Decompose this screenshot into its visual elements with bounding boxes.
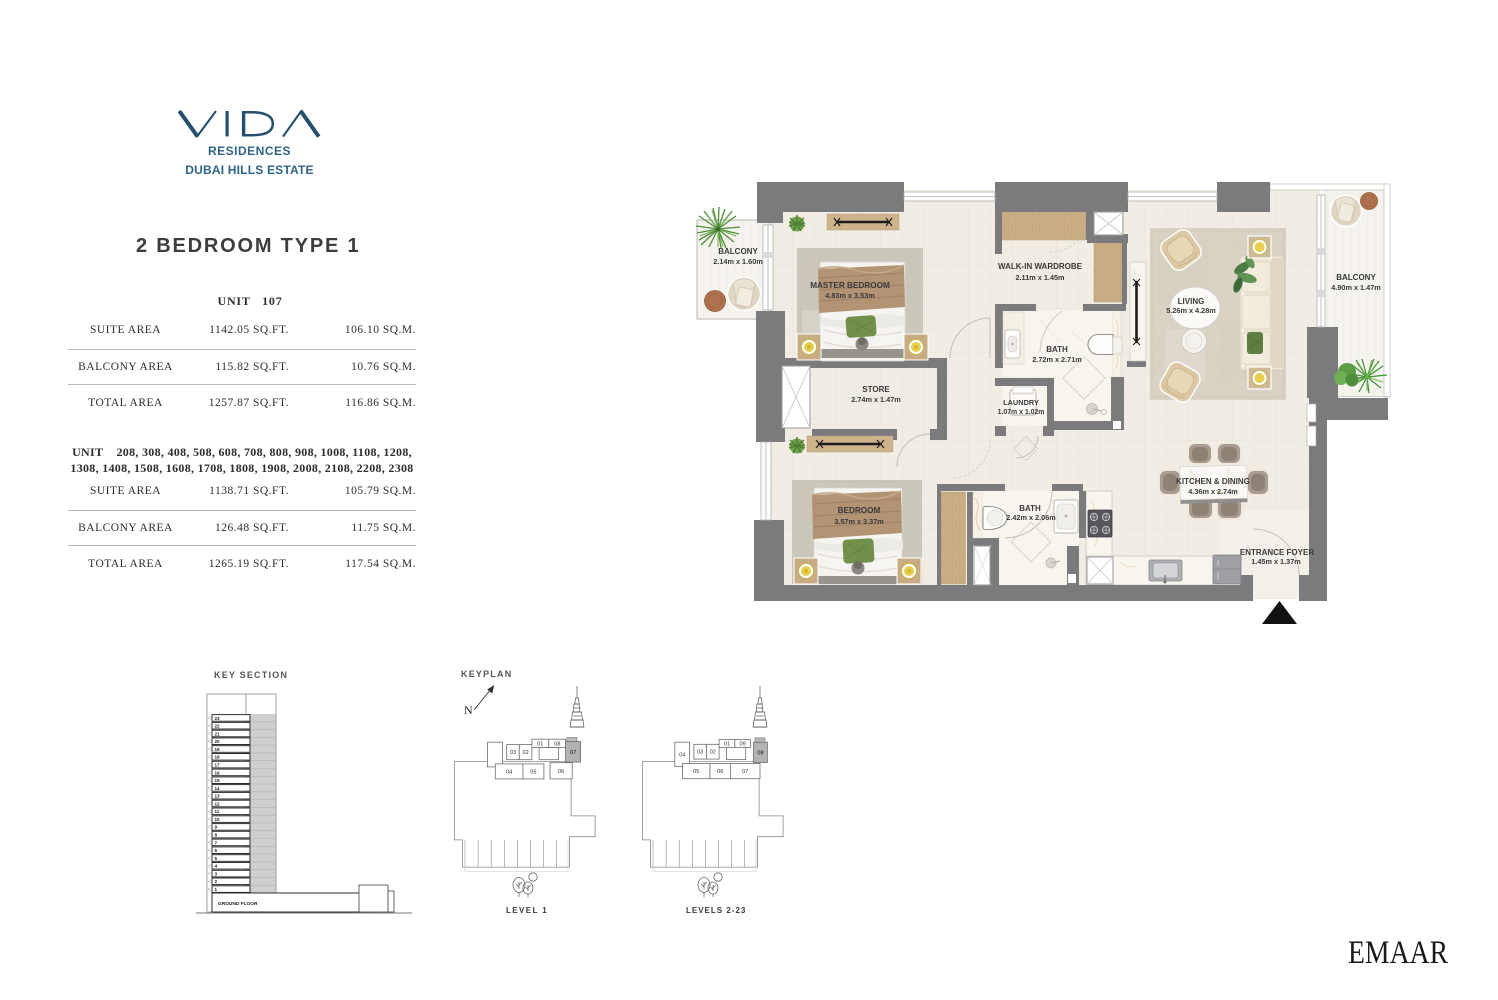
svg-text:06: 06 [558,769,564,775]
svg-text:4.36m x 2.74m: 4.36m x 2.74m [1188,487,1238,496]
svg-text:09: 09 [739,742,745,748]
svg-text:16: 16 [215,770,221,775]
svg-text:12: 12 [215,801,221,806]
svg-text:4: 4 [215,864,218,869]
svg-text:04: 04 [506,769,512,775]
svg-text:01: 01 [537,741,543,747]
svg-text:02: 02 [710,750,716,756]
svg-text:20: 20 [215,739,221,744]
svg-text:3.57m x 3.37m: 3.57m x 3.37m [834,517,884,526]
svg-text:2: 2 [215,879,218,884]
svg-text:BALCONY: BALCONY [718,247,758,256]
svg-text:10: 10 [215,817,221,822]
svg-text:N: N [464,703,473,717]
svg-text:01: 01 [724,742,730,748]
svg-text:BALCONY: BALCONY [1336,273,1376,282]
svg-text:LAUNDRY: LAUNDRY [1003,398,1039,407]
svg-text:02: 02 [522,750,528,756]
svg-text:STORE: STORE [862,385,890,394]
svg-text:18: 18 [215,755,221,760]
svg-text:5.26m x 4.28m: 5.26m x 4.28m [1166,306,1216,315]
svg-text:LEVEL 1: LEVEL 1 [506,906,548,915]
svg-text:3: 3 [215,871,218,876]
svg-text:LEVELS 2-23: LEVELS 2-23 [686,906,746,915]
svg-text:2.72m x 2.71m: 2.72m x 2.71m [1032,355,1082,364]
svg-text:07: 07 [742,769,748,775]
svg-text:KEY SECTION: KEY SECTION [214,670,288,680]
svg-text:LIVING: LIVING [1178,297,1205,306]
svg-text:2.11m x 1.45m: 2.11m x 1.45m [1015,273,1065,282]
svg-text:04: 04 [679,752,685,758]
svg-text:BATH: BATH [1019,504,1041,513]
svg-text:17: 17 [215,763,221,768]
svg-text:4.83m x 3.53m: 4.83m x 3.53m [825,291,875,300]
svg-text:13: 13 [215,794,221,799]
svg-text:9: 9 [215,825,218,830]
svg-text:BATH: BATH [1046,345,1068,354]
svg-text:8: 8 [215,833,218,838]
svg-text:7: 7 [215,840,218,845]
svg-text:1.07m x 1.02m: 1.07m x 1.02m [998,409,1045,416]
svg-text:21: 21 [215,731,221,736]
svg-text:2.42m x 2.06m: 2.42m x 2.06m [1006,513,1056,522]
svg-text:BEDROOM: BEDROOM [838,506,881,515]
svg-text:6: 6 [215,848,218,853]
svg-text:1: 1 [215,887,218,892]
svg-text:1.45m x 1.37m: 1.45m x 1.37m [1251,557,1301,566]
svg-text:MASTER BEDROOM: MASTER BEDROOM [810,281,890,290]
svg-text:23: 23 [215,716,221,721]
svg-text:08: 08 [554,741,560,747]
svg-text:03: 03 [510,750,516,756]
svg-text:07: 07 [570,750,576,756]
svg-text:05: 05 [693,769,699,775]
svg-text:2.74m x 1.47m: 2.74m x 1.47m [851,395,901,404]
svg-text:5: 5 [215,856,218,861]
svg-text:03: 03 [697,750,703,756]
svg-text:ENTRANCE FOYER: ENTRANCE FOYER [1240,548,1314,557]
svg-text:14: 14 [215,786,221,791]
svg-text:KEYPLAN: KEYPLAN [461,669,512,679]
svg-text:2.14m x 1.60m: 2.14m x 1.60m [713,257,763,266]
svg-text:KITCHEN & DINING: KITCHEN & DINING [1176,477,1250,486]
svg-text:4.90m x 1.47m: 4.90m x 1.47m [1331,283,1381,292]
svg-text:22: 22 [215,724,221,729]
svg-text:06: 06 [717,769,723,775]
svg-text:11: 11 [215,809,220,814]
svg-text:WALK-IN WARDROBE: WALK-IN WARDROBE [998,262,1083,271]
svg-text:GROUND FLOOR: GROUND FLOOR [218,901,258,907]
svg-text:05: 05 [530,769,536,775]
svg-text:15: 15 [215,778,221,783]
svg-text:08: 08 [757,750,763,756]
svg-text:19: 19 [215,747,221,752]
